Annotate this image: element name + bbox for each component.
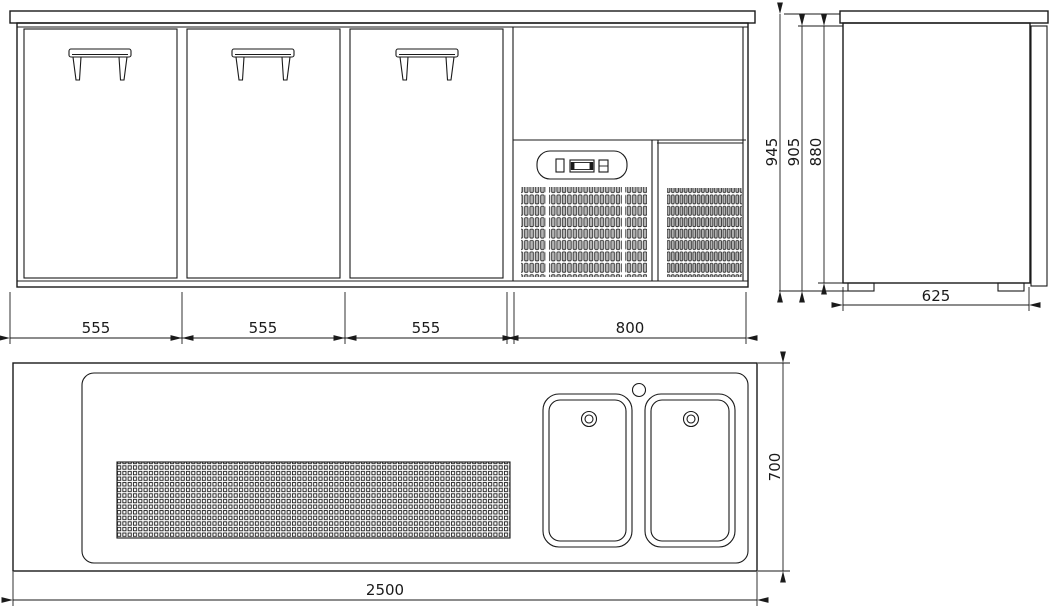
technical-drawing-canvas: 555 555 555 800 945 905 880 625 [0,0,1057,612]
handle-bar [232,49,294,57]
foot-left [848,283,874,291]
door-profile-side [1031,26,1047,286]
door-1-handle [69,49,131,80]
dim-label-total-depth: 700 [766,453,784,482]
sink-right-drain-outer [684,412,699,427]
handle-bar [396,49,458,57]
cabinet-body-side [843,23,1030,283]
door-3 [350,29,503,278]
dim-label-total-height: 945 [763,138,781,167]
worktop-vent-grille [117,462,510,538]
worktop-side [840,11,1048,23]
handle-bar [69,49,131,57]
control-panel-bezel [537,151,627,179]
door-2-handle [232,49,294,80]
dim-label-height-with-feet: 905 [785,138,803,167]
dim-label-door-1: 555 [82,319,111,337]
dim-label-total-width: 2500 [366,581,404,599]
sink-left-rim [543,394,632,547]
cooling-unit-section [513,27,746,281]
handle-left-leg [400,57,408,80]
dim-label-body-height: 880 [807,138,825,167]
control-panel [537,151,627,179]
front-dimensions: 555 555 555 800 [10,292,746,344]
handle-left-leg [73,57,81,80]
tap-hole [633,384,646,397]
display-left-key [571,162,574,170]
sink-right-drain-inner [687,415,695,423]
front-elevation-view: 555 555 555 800 [10,11,755,344]
foot-right [998,283,1024,291]
power-button [556,159,564,172]
condenser-grille [667,188,742,277]
drawing-sheet: 555 555 555 800 945 905 880 625 [0,0,1057,612]
display-right-key [590,162,593,170]
dim-label-cooling-unit: 800 [616,319,645,337]
door-3-handle [396,49,458,80]
handle-right-leg [119,57,127,80]
dim-label-door-3: 555 [412,319,441,337]
worktop-front [10,11,755,23]
side-dimensions: 945 905 880 625 [763,14,1029,311]
sink-left-drain-outer [582,412,597,427]
sink-left-drain-inner [585,415,593,423]
handle-left-leg [236,57,244,80]
side-elevation-view: 945 905 880 625 [763,11,1048,311]
sink-left [543,394,632,547]
door-1 [24,29,177,278]
handle-right-leg [446,57,454,80]
dim-label-door-2: 555 [249,319,278,337]
dim-label-depth: 625 [922,287,951,305]
plan-view: 700 2500 [13,363,790,606]
handle-right-leg [282,57,290,80]
vent-grille-left-narrow [521,187,546,277]
vent-grille-center [549,187,622,277]
vent-grille-right-narrow [625,187,647,277]
sink-right-bowl [651,400,729,541]
sink-right-rim [645,394,735,547]
door-2 [187,29,340,278]
sink-right [645,394,735,547]
thermostat-display-screen [574,163,590,170]
sink-left-bowl [549,400,626,541]
